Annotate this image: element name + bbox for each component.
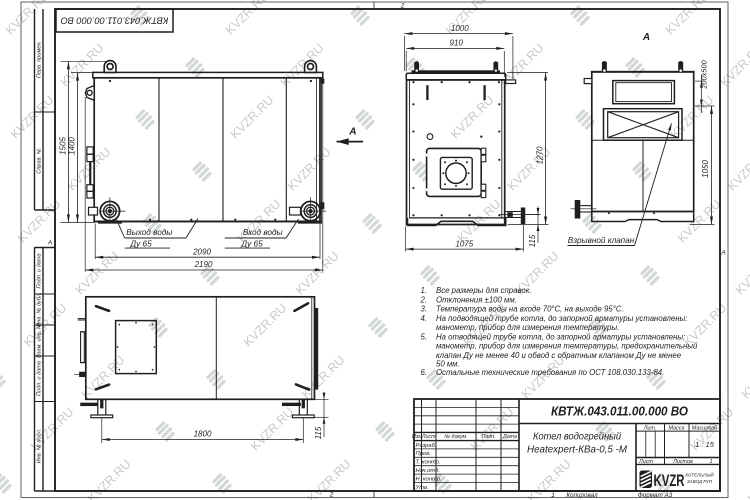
svg-text:115: 115 xyxy=(314,426,323,439)
svg-text:А: А xyxy=(642,32,650,43)
svg-text:115: 115 xyxy=(528,234,537,247)
svg-text:Отклонения ±100 мм.: Отклонения ±100 мм. xyxy=(436,295,517,304)
svg-text:Подп.: Подп. xyxy=(481,434,495,440)
svg-text:Лист: Лист xyxy=(421,434,436,440)
svg-text:KVZR: KVZR xyxy=(654,472,685,490)
svg-text:910: 910 xyxy=(450,39,464,48)
svg-text:Справ. №: Справ. № xyxy=(37,148,43,173)
svg-text:На подводящей трубе котла, до: На подводящей трубе котла, до запорной а… xyxy=(436,314,687,323)
svg-text:Инв. № подл.: Инв. № подл. xyxy=(37,429,43,464)
svg-text:Ду 65: Ду 65 xyxy=(240,240,263,249)
svg-text:Взрывной клапан: Взрывной клапан xyxy=(568,236,635,245)
svg-text:200х500: 200х500 xyxy=(700,59,709,89)
svg-text:1: 1 xyxy=(710,459,713,465)
svg-text:1: 1 xyxy=(551,492,555,499)
svg-text:На отводящей трубе котла, до з: На отводящей трубе котла, до запорной ар… xyxy=(436,332,685,341)
svg-text:Дата: Дата xyxy=(502,434,517,440)
svg-text:Копировал: Копировал xyxy=(566,492,598,499)
svg-text:1400: 1400 xyxy=(68,137,77,155)
svg-text:Т. контр.: Т. контр. xyxy=(416,460,441,466)
svg-text:Масштаб: Масштаб xyxy=(692,425,718,431)
svg-text:Подп. и дата: Подп. и дата xyxy=(37,253,43,288)
svg-text:1050: 1050 xyxy=(701,160,710,178)
svg-text:КВТЖ.043.011.00.000 ВО: КВТЖ.043.011.00.000 ВО xyxy=(61,16,169,26)
svg-text:Пров.: Пров. xyxy=(416,451,431,457)
svg-text:клапан Ду не менее 40 и обвод: клапан Ду не менее 40 и обвод с обратным… xyxy=(436,351,682,360)
svg-text:2: 2 xyxy=(400,3,405,10)
svg-text:3.: 3. xyxy=(420,305,427,314)
svg-text:1270: 1270 xyxy=(535,146,544,164)
svg-text:А: А xyxy=(348,127,356,138)
svg-text:1800: 1800 xyxy=(194,430,212,439)
svg-text:Разраб.: Разраб. xyxy=(416,443,437,449)
svg-text:Утв.: Утв. xyxy=(415,485,429,491)
svg-text:1075: 1075 xyxy=(455,239,473,248)
svg-text:Котел водогрейный: Котел водогрейный xyxy=(533,432,621,443)
svg-text:Лист: Лист xyxy=(638,459,653,465)
svg-text:Формат А3: Формат А3 xyxy=(638,492,673,499)
svg-text:Все размеры для справок.: Все размеры для справок. xyxy=(436,286,532,295)
svg-text:2.: 2. xyxy=(419,295,427,304)
svg-text:Инв. № дубл.: Инв. № дубл. xyxy=(37,292,43,326)
svg-text:ЗАВОД РУП: ЗАВОД РУП xyxy=(687,479,713,484)
svg-text:1000: 1000 xyxy=(451,24,469,33)
svg-text:2: 2 xyxy=(329,492,334,499)
svg-text:манометр, прибор для измерения: манометр, прибор для измерения температу… xyxy=(436,323,619,332)
svg-text:Остальные технические требован: Остальные технические требования по ОСТ … xyxy=(436,368,664,377)
svg-text:1 : 15: 1 : 15 xyxy=(695,440,715,449)
svg-text:КВТЖ.043.011.00.000 ВО: КВТЖ.043.011.00.000 ВО xyxy=(551,405,688,419)
svg-text:№ докум.: № докум. xyxy=(444,434,467,440)
svg-text:Лит.: Лит. xyxy=(643,425,657,431)
svg-text:Подп. и дата: Подп. и дата xyxy=(37,361,43,396)
svg-text:Перв. примен.: Перв. примен. xyxy=(37,41,43,78)
svg-text:Heatexpert-КВа-0,5 -М: Heatexpert-КВа-0,5 -М xyxy=(527,445,627,456)
svg-text:КОТЕЛЬНЫЙ: КОТЕЛЬНЫЙ xyxy=(685,471,714,478)
svg-text:Н. контр.: Н. контр. xyxy=(416,476,442,482)
svg-text:1505: 1505 xyxy=(58,137,67,155)
svg-text:манометр, прибор для измерения: манометр, прибор для измерения температу… xyxy=(436,342,698,351)
svg-text:Температура воды на входе 70°С: Температура воды на входе 70°С, на выход… xyxy=(436,305,624,314)
svg-text:Выход воды: Выход воды xyxy=(126,228,172,237)
svg-text:5.: 5. xyxy=(420,332,427,341)
svg-text:Взам. инв. №: Взам. инв. № xyxy=(37,323,43,358)
svg-text:Масса: Масса xyxy=(669,425,685,431)
svg-text:2190: 2190 xyxy=(194,260,213,269)
svg-text:Нач.отд.: Нач.отд. xyxy=(416,468,440,474)
svg-text:Ду 65: Ду 65 xyxy=(129,240,152,249)
svg-text:2090: 2090 xyxy=(192,247,211,256)
svg-text:6.: 6. xyxy=(420,368,427,377)
svg-text:Вход воды: Вход воды xyxy=(243,228,283,237)
svg-text:1.: 1. xyxy=(420,286,427,295)
svg-text:Листов: Листов xyxy=(672,459,693,465)
svg-text:А: А xyxy=(720,250,725,257)
svg-text:А: А xyxy=(47,240,52,247)
svg-text:4.: 4. xyxy=(420,314,427,323)
